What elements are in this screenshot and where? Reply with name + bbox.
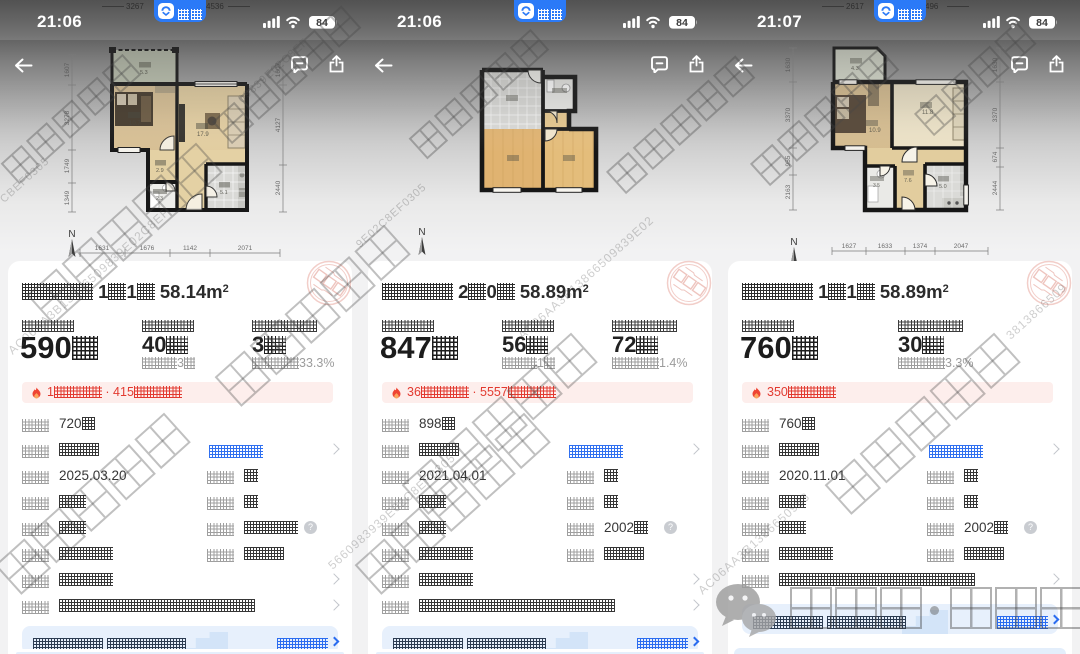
svg-text:5.3: 5.3: [140, 70, 148, 76]
svg-text:N: N: [68, 229, 75, 240]
svg-text:1374: 1374: [913, 243, 928, 250]
svg-text:3.5: 3.5: [873, 183, 880, 189]
svg-text:3370: 3370: [992, 107, 999, 122]
svg-text:674: 674: [992, 151, 999, 162]
svg-text:10.7: 10.7: [129, 121, 141, 127]
svg-text:2071: 2071: [238, 245, 253, 252]
svg-text:84: 84: [676, 17, 688, 29]
svg-text:17.9: 17.9: [197, 132, 209, 138]
svg-text:1349: 1349: [64, 190, 71, 205]
svg-text:2444: 2444: [992, 180, 999, 195]
svg-text:1627: 1627: [842, 243, 857, 250]
svg-text:1749: 1749: [64, 158, 71, 173]
svg-text:5.0: 5.0: [939, 184, 947, 190]
svg-text:7.6: 7.6: [904, 178, 912, 184]
svg-text:1142: 1142: [183, 245, 197, 252]
svg-text:N: N: [790, 237, 797, 248]
svg-text:10.9: 10.9: [869, 128, 881, 134]
svg-text:1630: 1630: [785, 57, 792, 72]
svg-text:1676: 1676: [140, 245, 155, 252]
svg-text:1607: 1607: [64, 62, 71, 77]
svg-text:2440: 2440: [275, 180, 282, 195]
svg-text:2163: 2163: [785, 184, 792, 199]
svg-text:84: 84: [1036, 17, 1048, 29]
svg-text:5.1: 5.1: [220, 190, 228, 196]
svg-text:2047: 2047: [954, 243, 969, 250]
svg-text:3370: 3370: [785, 107, 792, 122]
svg-text:N: N: [418, 227, 425, 238]
svg-text:4127: 4127: [275, 117, 282, 132]
svg-text:1633: 1633: [878, 243, 893, 250]
